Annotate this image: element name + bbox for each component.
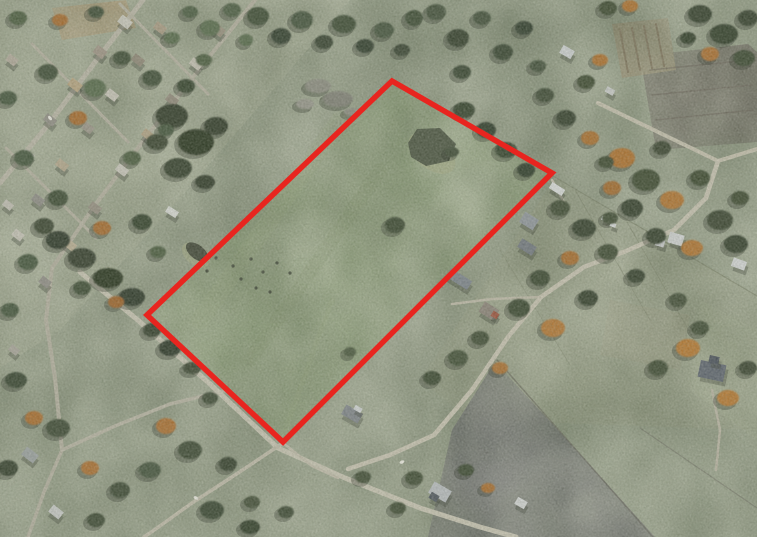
aerial-map-screenshot — [0, 0, 757, 537]
aerial-map-image — [0, 0, 757, 537]
grain-overlay-light — [0, 0, 757, 537]
